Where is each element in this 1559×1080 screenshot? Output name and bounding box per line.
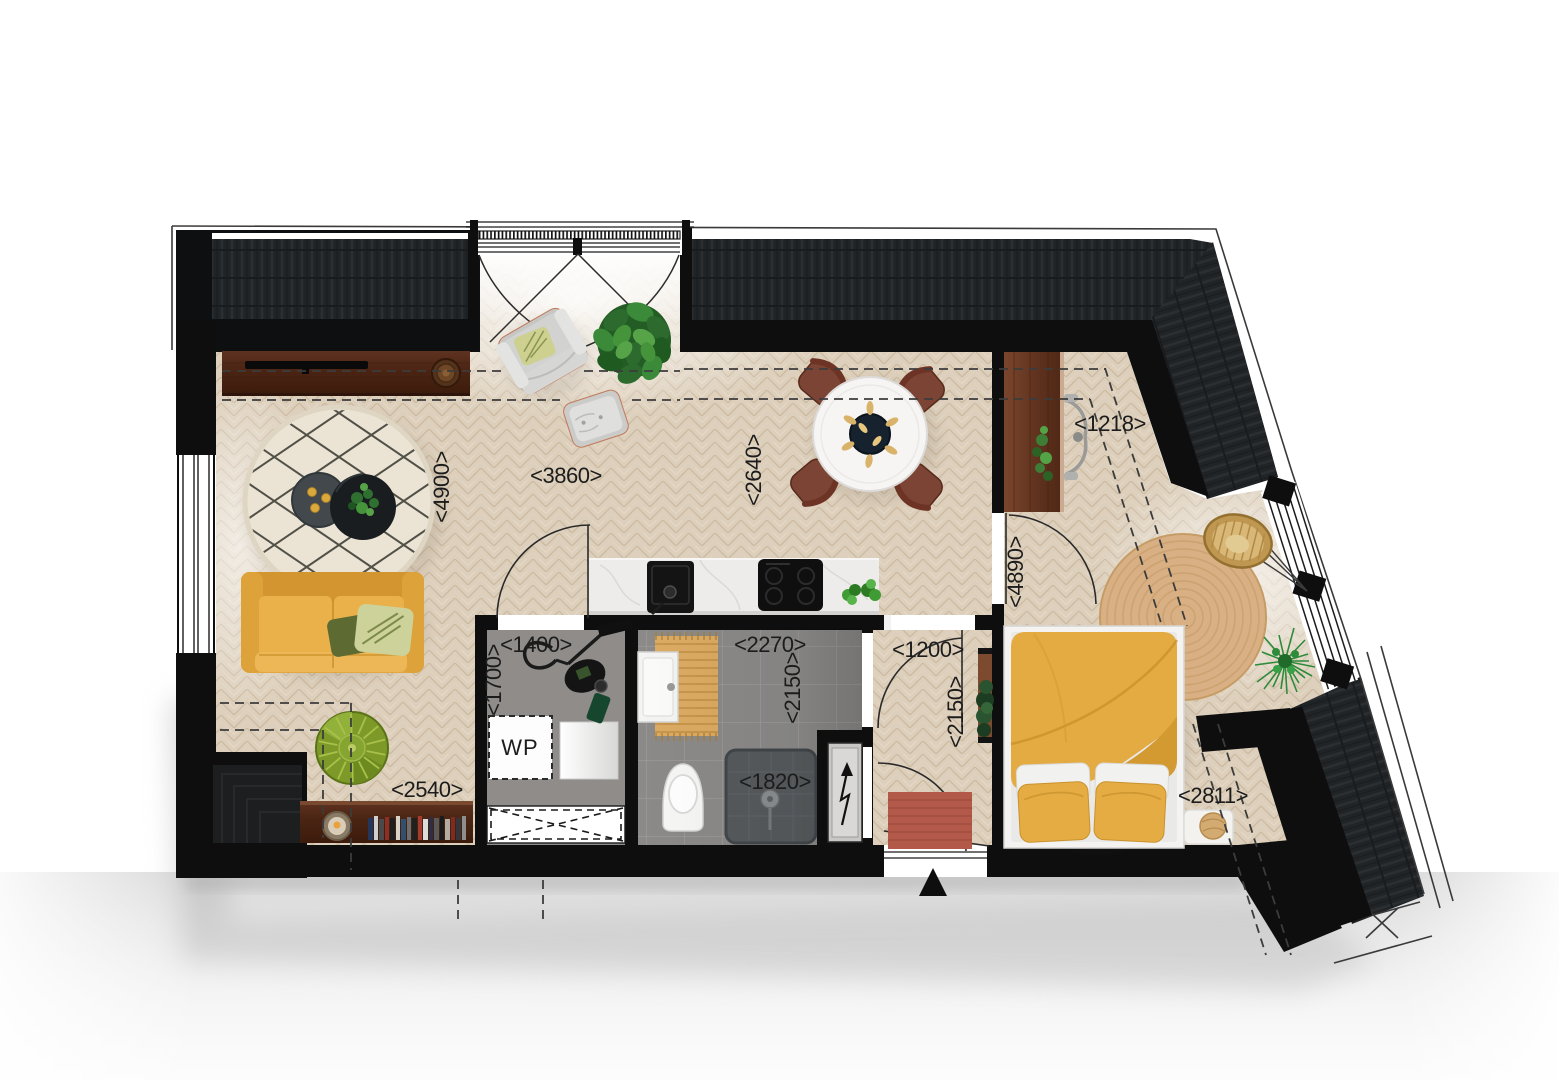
svg-text:<1700>: <1700>	[481, 644, 506, 716]
svg-text:<4900>: <4900>	[429, 451, 454, 523]
svg-text:<1400>: <1400>	[500, 632, 572, 657]
svg-text:<2540>: <2540>	[391, 777, 463, 802]
svg-text:WP: WP	[501, 735, 538, 760]
svg-text:<3860>: <3860>	[530, 463, 602, 488]
svg-text:<4890>: <4890>	[1003, 536, 1028, 608]
svg-text:<1218>: <1218>	[1074, 411, 1146, 436]
svg-text:<2150>: <2150>	[780, 652, 805, 724]
svg-text:<1820>: <1820>	[739, 769, 811, 794]
svg-text:<1200>: <1200>	[892, 637, 964, 662]
svg-text:<2150>: <2150>	[943, 676, 968, 748]
svg-text:<2811>: <2811>	[1178, 783, 1248, 808]
svg-text:<2640>: <2640>	[741, 434, 766, 506]
